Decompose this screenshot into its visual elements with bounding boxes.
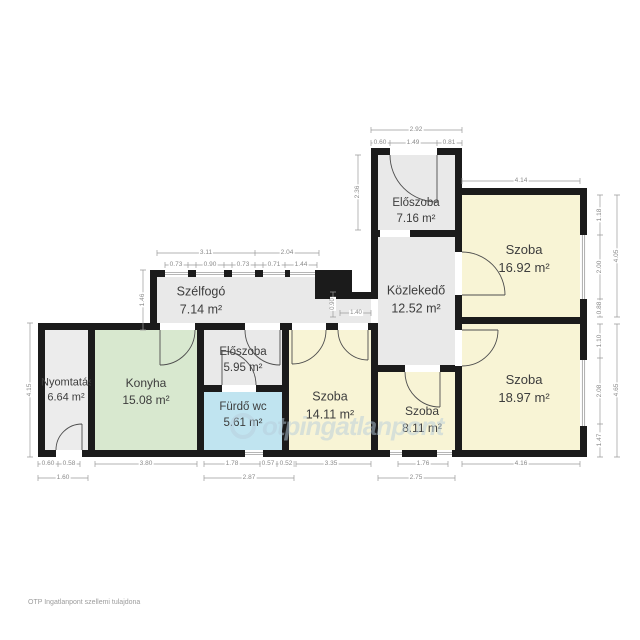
dim-label: 1.49 (406, 140, 421, 147)
dim-label: 2.36 (355, 185, 362, 200)
room-label-szelfogo: Szélfogó 7.14 m² (177, 284, 226, 319)
dim-label: 1.40 (349, 310, 363, 316)
dim-label: 0.58 (62, 461, 77, 468)
dim-label: 1.76 (416, 461, 431, 468)
dim-label: 3.11 (199, 250, 213, 257)
room-area: 16.92 m² (498, 259, 549, 277)
dim-label: 2.87 (242, 475, 257, 482)
dim-label: 1.47 (597, 433, 604, 448)
room-name: Konyha (122, 375, 169, 392)
room-area: 7.14 m² (177, 301, 226, 319)
room-name: Szoba (402, 403, 442, 420)
dim-label: 1.44 (294, 262, 309, 269)
room-name: Nyomtatás (41, 376, 91, 391)
room-label-eloszoba-small: Előszoba 5.95 m² (219, 344, 266, 376)
dim-label: 0.81 (442, 140, 457, 147)
dim-label: 4.14 (514, 178, 529, 185)
dim-label: 0.71 (267, 262, 282, 269)
room-name: Fürdő wc (219, 399, 266, 415)
room-name: Szélfogó (177, 284, 226, 302)
dim-label: 4.15 (27, 383, 34, 398)
room-label-konyha: Konyha 15.08 m² (122, 375, 169, 409)
dim-label: 2.00 (597, 260, 604, 275)
room-name: Közlekedő (387, 283, 445, 301)
dim-label: 4.05 (614, 249, 621, 264)
room-area: 14.11 m² (306, 406, 354, 424)
room-label-szoba14: Szoba 14.11 m² (306, 389, 354, 424)
room-area: 7.16 m² (392, 211, 439, 227)
room-label-furdo: Fürdő wc 5.61 m² (219, 399, 266, 431)
dim-label: 2.92 (409, 127, 424, 134)
dim-label: 1.46 (140, 293, 147, 308)
dim-label: 0.88 (597, 301, 604, 316)
dim-label: 3.35 (324, 461, 339, 468)
room-area: 6.64 m² (41, 391, 91, 406)
dim-label: 2.04 (280, 250, 295, 257)
dim-label: 1.18 (597, 208, 604, 223)
dim-label: 1.60 (56, 475, 71, 482)
room-name: Szoba (306, 389, 354, 407)
room-label-szoba16: Szoba 16.92 m² (498, 241, 549, 277)
room-name: Előszoba (219, 344, 266, 360)
dim-label: 4.65 (614, 383, 621, 398)
dim-label: 0.73 (169, 262, 184, 269)
room-label-szoba18: Szoba 18.97 m² (498, 371, 549, 407)
dim-label: 0.57 (261, 461, 276, 468)
copyright-note: OTP Ingatlanpont szellemi tulajdona (28, 599, 140, 606)
floorplan-drawing (0, 0, 640, 640)
dim-label: 1.10 (597, 334, 604, 349)
room-label-nyomtatas: Nyomtatás 6.64 m² (41, 376, 91, 407)
room-area: 18.97 m² (498, 389, 549, 407)
room-label-kozlekedo: Közlekedő 12.52 m² (387, 283, 445, 318)
dim-label: 1.78 (225, 461, 240, 468)
floorplan-page: Nyomtatás 6.64 m² Konyha 15.08 m² Szélfo… (0, 0, 640, 640)
dim-label: 0.60 (41, 461, 56, 468)
dim-label: 2.08 (597, 384, 604, 399)
dim-label: 0.90 (330, 297, 336, 311)
room-label-eloszoba-top: Előszoba 7.16 m² (392, 195, 439, 227)
room-area: 5.61 m² (219, 415, 266, 431)
room-area: 8.11 m² (402, 420, 442, 437)
room-area: 5.95 m² (219, 360, 266, 376)
room-name: Előszoba (392, 195, 439, 211)
dim-label: 0.90 (203, 262, 218, 269)
dim-label: 4.16 (514, 461, 529, 468)
room-area: 12.52 m² (387, 300, 445, 318)
room-area: 15.08 m² (122, 392, 169, 409)
room-name: Szoba (498, 241, 549, 259)
room-label-szoba8: Szoba 8.11 m² (402, 403, 442, 437)
dim-label: 0.52 (279, 461, 294, 468)
room-name: Szoba (498, 371, 549, 389)
dim-label: 3.80 (139, 461, 154, 468)
dim-label: 0.60 (373, 140, 388, 147)
dim-label: 2.75 (409, 475, 424, 482)
dim-label: 0.73 (236, 262, 251, 269)
